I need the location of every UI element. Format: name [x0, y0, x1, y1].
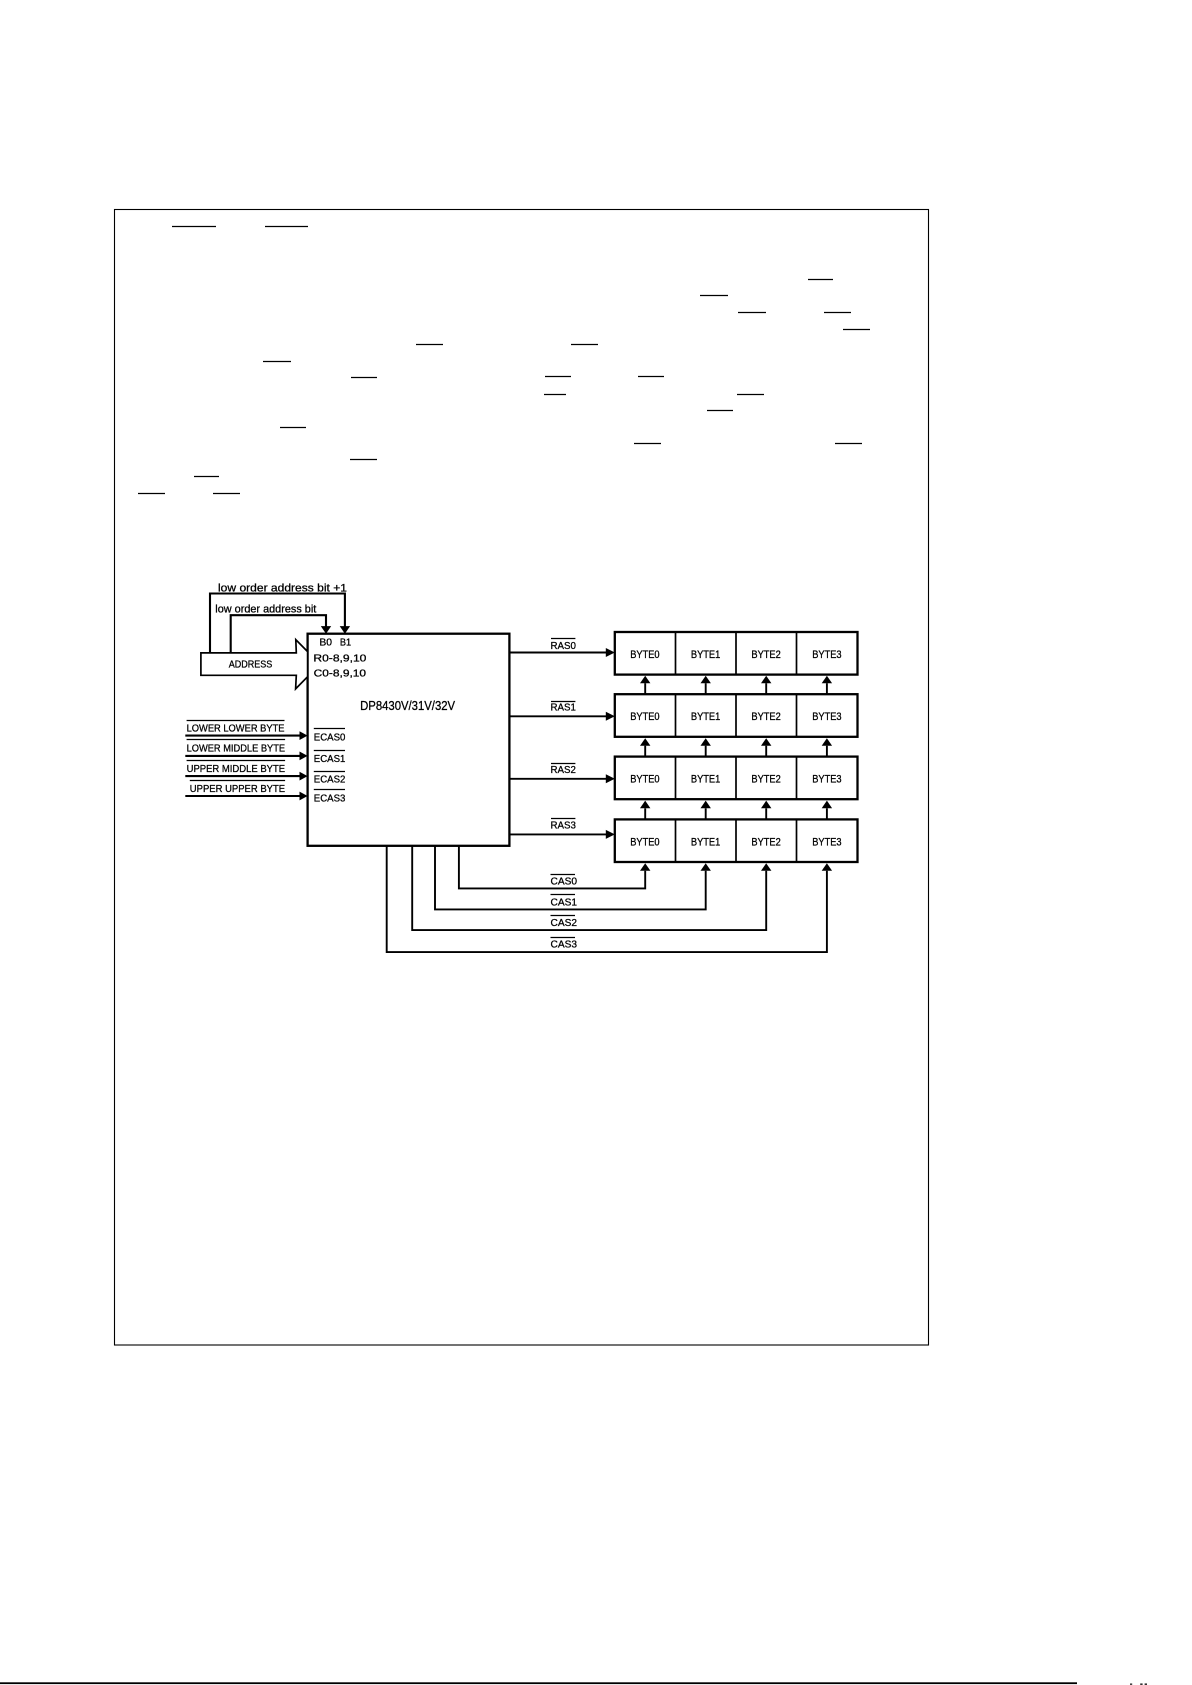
svg-text:R0-8,9,10: R0-8,9,10 [313, 653, 366, 665]
svg-text:BYTE3: BYTE3 [812, 774, 841, 786]
svg-text:RAS0: RAS0 [551, 640, 577, 652]
svg-text:BYTE2: BYTE2 [751, 711, 780, 723]
svg-text:ECAS0: ECAS0 [314, 731, 346, 743]
svg-text:BYTE1: BYTE1 [691, 836, 720, 848]
svg-text:BYTE1: BYTE1 [691, 711, 720, 723]
svg-text:ECAS3: ECAS3 [314, 792, 346, 804]
svg-text:BYTE3: BYTE3 [812, 711, 841, 723]
svg-text:ADDRESS: ADDRESS [229, 658, 273, 670]
svg-text:BYTE3: BYTE3 [812, 836, 841, 848]
svg-text:BYTE0: BYTE0 [630, 711, 659, 723]
svg-text:BYTE0: BYTE0 [630, 649, 659, 661]
svg-text:BYTE1: BYTE1 [691, 774, 720, 786]
svg-text:ECAS2: ECAS2 [314, 774, 346, 786]
svg-text:B0: B0 [319, 637, 332, 649]
svg-text:RAS2: RAS2 [551, 764, 577, 776]
svg-text:low order address bit +1: low order address bit +1 [218, 583, 347, 595]
svg-text:low order address bit: low order address bit [215, 603, 316, 615]
svg-text:CAS1: CAS1 [551, 896, 578, 908]
svg-text:BYTE2: BYTE2 [751, 649, 780, 661]
svg-text:DP8430V/31V/32V: DP8430V/31V/32V [360, 698, 455, 713]
svg-text:CAS3: CAS3 [551, 939, 578, 951]
svg-text:CAS2: CAS2 [551, 917, 578, 929]
svg-text:BYTE2: BYTE2 [751, 836, 780, 848]
svg-text:RAS3: RAS3 [551, 819, 577, 831]
svg-text:BYTE1: BYTE1 [691, 649, 720, 661]
svg-text:UPPER UPPER BYTE: UPPER UPPER BYTE [190, 783, 285, 795]
svg-text:BYTE0: BYTE0 [630, 836, 659, 848]
svg-text:BYTE3: BYTE3 [812, 649, 841, 661]
svg-text:ECAS1: ECAS1 [314, 753, 346, 765]
svg-text:CAS0: CAS0 [551, 876, 578, 888]
svg-text:C0-8,9,10: C0-8,9,10 [314, 667, 367, 679]
svg-text:BYTE2: BYTE2 [751, 774, 780, 786]
svg-text:UPPER MIDDLE BYTE: UPPER MIDDLE BYTE [187, 763, 286, 775]
svg-text:B1: B1 [340, 637, 351, 649]
svg-text:LOWER LOWER BYTE: LOWER LOWER BYTE [187, 722, 285, 734]
svg-text:BYTE0: BYTE0 [630, 774, 659, 786]
svg-text:RAS1: RAS1 [551, 702, 577, 714]
svg-text:LOWER MIDDLE BYTE: LOWER MIDDLE BYTE [187, 742, 286, 754]
